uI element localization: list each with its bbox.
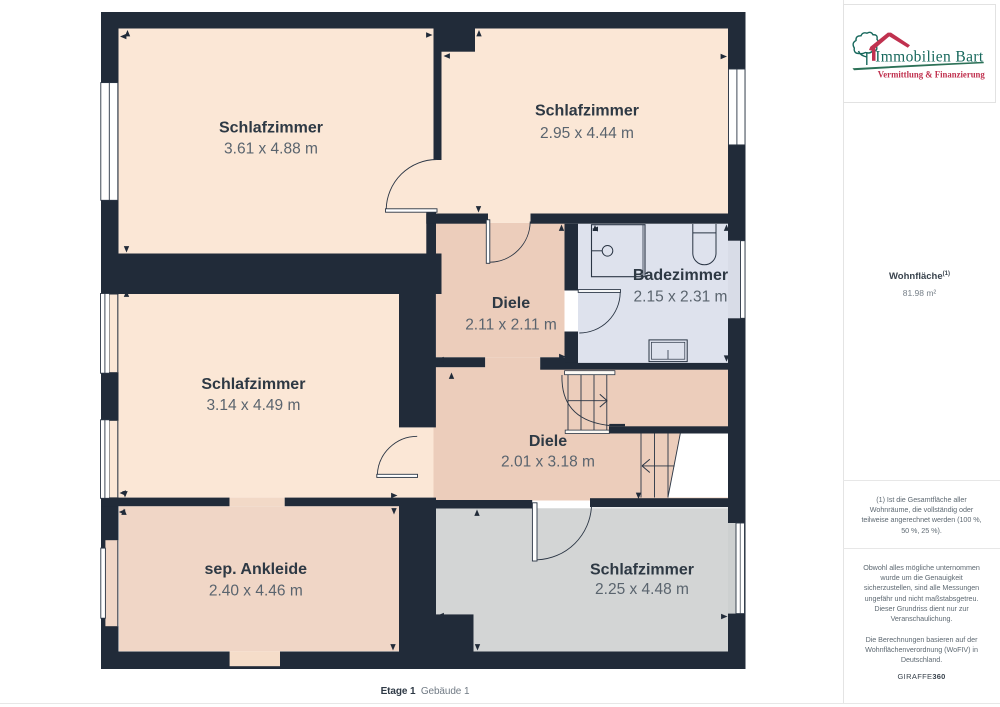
svg-text:Diele: Diele — [492, 295, 530, 312]
svg-text:2.01 x 3.18 m: 2.01 x 3.18 m — [501, 454, 595, 471]
svg-text:3.14 x 4.49 m: 3.14 x 4.49 m — [206, 397, 300, 414]
svg-text:2.11 x 2.11 m: 2.11 x 2.11 m — [465, 317, 557, 334]
svg-text:2.25 x 4.48 m: 2.25 x 4.48 m — [595, 581, 689, 598]
svg-text:3.61 x 4.88 m: 3.61 x 4.88 m — [224, 141, 318, 158]
svg-text:Schlafzimmer: Schlafzimmer — [201, 376, 305, 393]
svg-text:Diele: Diele — [529, 433, 567, 450]
svg-text:2.40 x 4.46 m: 2.40 x 4.46 m — [209, 583, 303, 600]
svg-text:Schlafzimmer: Schlafzimmer — [535, 103, 639, 120]
svg-text:Badezimmer: Badezimmer — [633, 267, 728, 284]
svg-text:2.15 x 2.31 m: 2.15 x 2.31 m — [634, 289, 728, 306]
svg-text:sep. Ankleide: sep. Ankleide — [205, 561, 308, 578]
svg-text:Schlafzimmer: Schlafzimmer — [219, 120, 323, 137]
svg-text:2.95 x 4.44 m: 2.95 x 4.44 m — [540, 125, 634, 142]
svg-text:Schlafzimmer: Schlafzimmer — [590, 562, 694, 579]
svg-text:Vermittlung & Finanzierung: Vermittlung & Finanzierung — [878, 71, 985, 81]
